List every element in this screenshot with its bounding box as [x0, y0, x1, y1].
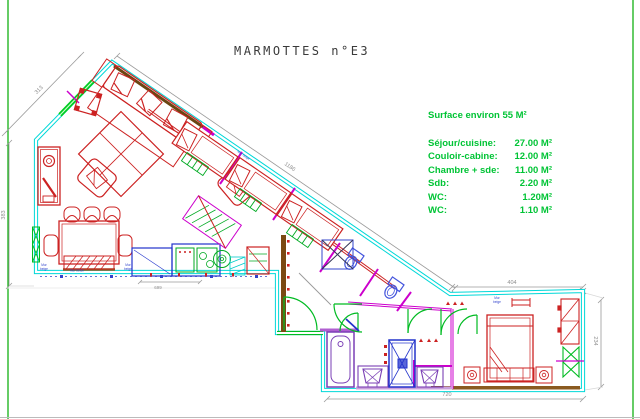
dim-699-text: 699: [154, 285, 162, 290]
dimension-720: [324, 396, 586, 402]
room-label: Séjour/cuisine:: [428, 137, 496, 151]
surface-table: Surface environ 55 M² Séjour/cuisine: 27…: [428, 109, 552, 218]
mur-label: beige: [124, 267, 132, 271]
surface-row: Couloir-cabine: 12.00 M²: [428, 150, 552, 164]
room-area: 1.10 M²: [520, 204, 552, 218]
dimension-404: [449, 284, 586, 290]
dim-234-text: 234: [592, 336, 598, 345]
surface-table-header: Surface environ 55 M²: [428, 109, 552, 123]
surface-row: WC: 1.10 M²: [428, 204, 552, 218]
surface-row: WC: 1.20M²: [428, 191, 552, 205]
dim-404-text: 404: [507, 280, 516, 286]
dimension-699: [138, 280, 202, 284]
plan-title: MARMOTTES n°E3: [234, 44, 370, 58]
dim-383-text: 383: [1, 210, 7, 219]
room-area: 1.20M²: [522, 191, 552, 205]
room-area: 2.20 M²: [520, 177, 552, 191]
surface-row: Séjour/cuisine: 27.00 M²: [428, 137, 552, 151]
room-label: Chambre + sde:: [428, 164, 500, 178]
room-area: 11.00 M²: [515, 164, 552, 178]
dim-720-text: 720: [442, 392, 451, 398]
room-label: Couloir-cabine:: [428, 150, 498, 164]
room-label: Sdb:: [428, 177, 449, 191]
surface-row: Sdb: 2.20 M²: [428, 177, 552, 191]
mur-label: beige: [493, 300, 501, 304]
mur-label: beige: [40, 267, 48, 271]
room-area: 12.00 M²: [515, 150, 553, 164]
floor-plan-page: 313 383 1186 404 234 720 699: [0, 0, 640, 419]
surface-row: Chambre + sde: 11.00 M²: [428, 164, 552, 178]
room-area: 27.00 M²: [515, 137, 553, 151]
mur-label: Mur béton: [70, 269, 85, 273]
room-label: WC:: [428, 191, 447, 205]
room-label: WC:: [428, 204, 447, 218]
dimension-383: [6, 140, 34, 289]
